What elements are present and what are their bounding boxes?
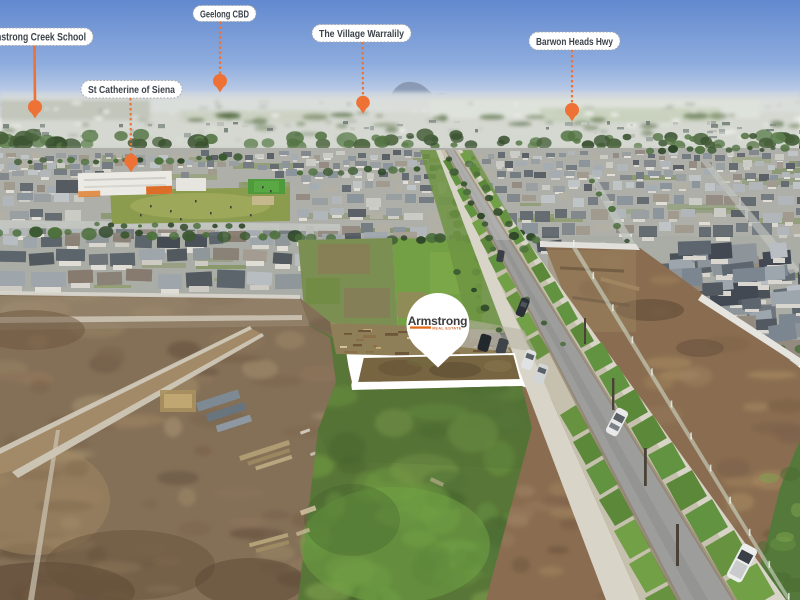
svg-text:The Village Warralily: The Village Warralily (319, 29, 404, 40)
svg-text:Barwon Heads Hwy: Barwon Heads Hwy (536, 37, 613, 48)
svg-text:REAL ESTATE: REAL ESTATE (432, 325, 461, 330)
svg-text:St Catherine of Siena: St Catherine of Siena (88, 85, 175, 96)
svg-text:Armstrong Creek School: Armstrong Creek School (0, 32, 86, 44)
svg-text:Geelong CBD: Geelong CBD (200, 9, 249, 20)
